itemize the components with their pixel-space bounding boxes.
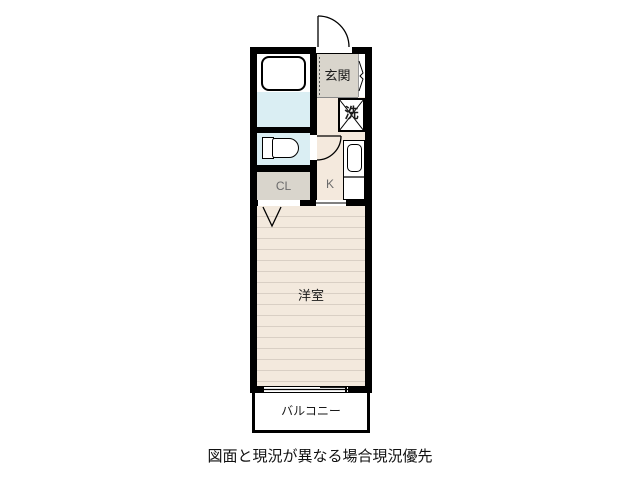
balcony-window-opening [262, 386, 348, 393]
toilet-door-opening [310, 135, 317, 160]
entrance-label: 玄関 [317, 69, 358, 82]
closet-door-opening [258, 200, 300, 206]
disclaimer-caption: 図面と現況が異なる場合現況優先 [0, 445, 640, 466]
wall-left [250, 47, 257, 393]
bathtub-icon [261, 56, 306, 91]
shoe-cabinet [358, 54, 365, 97]
floor-plan: 玄関 洗 CL K 洋室 バルコニー 図面と現況が異なる場合現況優先 [0, 0, 640, 480]
wall-right [365, 47, 372, 393]
washroom-floor [257, 92, 310, 127]
kitchen-passage-opening [316, 200, 346, 206]
balcony-label: バルコニー [252, 405, 370, 417]
entrance-door-swing-icon [318, 16, 349, 47]
wall-top [250, 47, 372, 54]
washing-machine-label: 洗 [338, 106, 365, 120]
closet-label: CL [257, 180, 310, 192]
wall-toilet-closet [257, 165, 310, 172]
toilet-bowl-icon [272, 138, 299, 158]
kitchen-sink-icon [347, 144, 362, 172]
western-room-label: 洋室 [257, 289, 365, 302]
kitchen-label: K [317, 178, 343, 190]
wall-center-vertical [310, 54, 317, 206]
entrance-door-opening [316, 47, 352, 54]
wall-bath-toilet [257, 127, 310, 133]
